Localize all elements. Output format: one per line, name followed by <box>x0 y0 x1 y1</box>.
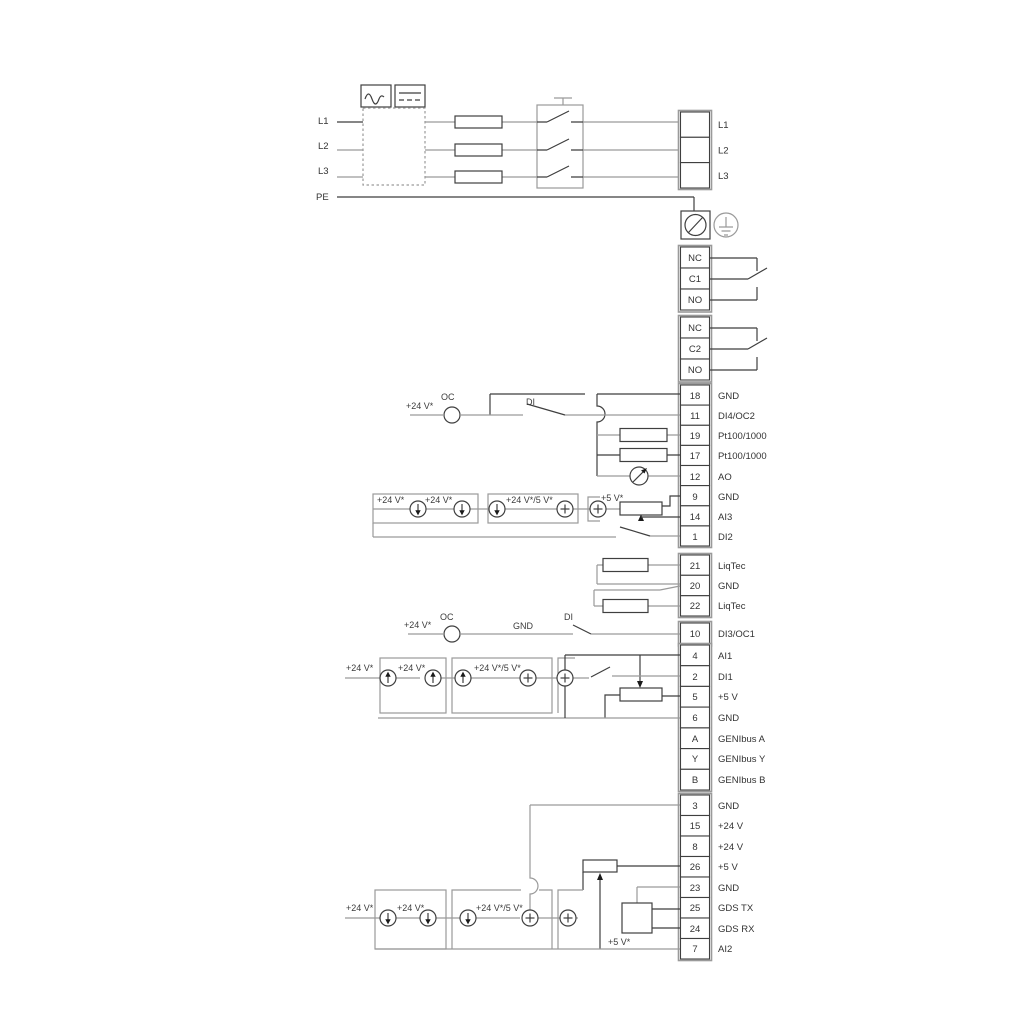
di3-gnd-label: GND <box>513 621 534 631</box>
relay1-no-label: NO <box>688 295 702 306</box>
current-source-icon <box>455 670 471 686</box>
liqtec-sensor-icon-1 <box>603 559 648 572</box>
terminal-22-num: 22 <box>690 601 701 612</box>
ai2-wiper-arrowhead <box>597 873 603 880</box>
ai1-pot-to-gnd <box>605 695 620 718</box>
terminal-26-label: +5 V <box>718 862 738 873</box>
relay1-nc-label: NC <box>688 253 702 264</box>
terminal-14-num: 14 <box>690 512 701 523</box>
liqtec-section: 21 20 22 LiqTec GND LiqTec <box>594 554 746 618</box>
terminal-l1-label: L1 <box>718 120 729 131</box>
terminal-12-label: AO <box>718 472 732 483</box>
terminal-15-num: 15 <box>690 821 701 832</box>
di3-oc-label: OC <box>440 612 454 622</box>
terminal-4-num: 4 <box>692 651 697 662</box>
gds-module-icon <box>622 903 652 933</box>
ai3-v24-label-a: +24 V* <box>377 495 405 505</box>
mains-l1-label: L1 <box>318 116 329 127</box>
terminal-Y-label: GENIbus Y <box>718 754 766 765</box>
ai3-v24-5v-label: +24 V*/5 V* <box>506 495 553 505</box>
wire-pe <box>337 197 694 211</box>
di4-oc-icon <box>444 407 460 423</box>
terminal-7-num: 7 <box>692 944 697 955</box>
current-source-icon <box>489 501 505 517</box>
di4-box <box>490 394 585 415</box>
relay2-contact-icon <box>710 328 767 370</box>
terminal-6-num: 6 <box>692 713 697 724</box>
ai1-v24-label-b: +24 V* <box>398 663 426 673</box>
terminal-8-label: +24 V <box>718 842 744 853</box>
terminal-21-num: 21 <box>690 561 701 572</box>
terminal-B-label: GENIbus B <box>718 775 766 786</box>
gds-wires <box>652 909 680 928</box>
pt100-resistor-icon-1 <box>620 429 667 442</box>
voltage-source-icon <box>557 501 573 517</box>
terminal-2-num: 2 <box>692 672 697 683</box>
contactor-pole-1 <box>537 111 583 122</box>
ai2-potentiometer-icon <box>583 860 617 872</box>
fuse-l2-icon <box>455 144 502 156</box>
terminal-10-label: DI3/OC1 <box>718 629 755 640</box>
ai2-5v-label: +5 V* <box>608 937 631 947</box>
di4-oc-label: OC <box>441 392 455 402</box>
terminal-20-num: 20 <box>690 581 701 592</box>
ai3-v24-label-b: +24 V* <box>425 495 453 505</box>
terminal-25-num: 25 <box>690 903 701 914</box>
current-source-icon <box>454 501 470 517</box>
ai3-pot-to-gnd <box>662 496 680 506</box>
current-source-icon <box>460 910 476 926</box>
relay1-c1-label: C1 <box>689 274 701 285</box>
terminal-14-label: AI3 <box>718 512 732 523</box>
terminal-A-label: GENIbus A <box>718 734 766 745</box>
terminal-9-label: GND <box>718 492 739 503</box>
terminal-4-label: AI1 <box>718 651 732 662</box>
terminal-l3-label: L3 <box>718 171 729 182</box>
terminal-9-num: 9 <box>692 492 697 503</box>
io-block-1-section: 18 11 19 17 12 9 14 1 GND DI4/OC2 Pt100/… <box>373 384 767 548</box>
relay-2-section: NC C2 NO <box>679 316 768 383</box>
dc-symbol-box <box>395 85 425 107</box>
terminal-l2-label: L2 <box>718 146 729 157</box>
terminal-10-num: 10 <box>690 629 701 640</box>
mains-l2-label: L2 <box>318 141 329 152</box>
fuse-l1-icon <box>455 116 502 128</box>
relay2-no-label: NO <box>688 365 702 376</box>
voltage-source-icon <box>522 910 538 926</box>
current-source-icon <box>410 501 426 517</box>
contactor-box-icon <box>537 105 583 188</box>
current-source-icon <box>380 910 396 926</box>
terminal-23-label: GND <box>718 883 739 894</box>
voltage-source-icon <box>520 670 536 686</box>
wire-gnd23 <box>637 887 680 903</box>
terminal-24-label: GDS RX <box>718 924 755 935</box>
terminal-21-label: LiqTec <box>718 561 746 572</box>
mains-pe-label: PE <box>316 192 329 203</box>
ai2-v24-5v-label: +24 V*/5 V* <box>476 903 523 913</box>
current-source-icon <box>425 670 441 686</box>
terminal-17-num: 17 <box>690 451 701 462</box>
contactor-pole-3 <box>537 166 583 177</box>
terminal-11-label: DI4/OC2 <box>718 411 755 422</box>
mains-l3-label: L3 <box>318 166 329 177</box>
terminal-2-label: DI1 <box>718 672 733 683</box>
terminal-6-label: GND <box>718 713 739 724</box>
gnd3-riser <box>530 805 538 910</box>
terminal-Y-num: Y <box>692 754 699 765</box>
di1-switch-icon <box>591 667 610 677</box>
ai2-v24-label-a: +24 V* <box>346 903 374 913</box>
relay2-c2-label: C2 <box>689 344 701 355</box>
voltage-source-icon <box>590 501 606 517</box>
terminal-l1 <box>681 112 710 137</box>
voltage-source-icon <box>560 910 576 926</box>
terminal-18-num: 18 <box>690 391 701 402</box>
ai1-v24-5v-label: +24 V*/5 V* <box>474 663 521 673</box>
di3-oc-icon <box>444 626 460 642</box>
terminal-5-label: +5 V <box>718 692 738 703</box>
ai1-v24-label-a: +24 V* <box>346 663 374 673</box>
terminal-25-label: GDS TX <box>718 903 754 914</box>
terminal-3-label: GND <box>718 801 739 812</box>
wiring-diagram-page: L1 L2 L3 PE L1 L2 L3 <box>0 0 1024 1024</box>
terminal-23-num: 23 <box>690 883 701 894</box>
terminal-19-label: Pt100/1000 <box>718 431 767 442</box>
wiring-diagram: L1 L2 L3 PE L1 L2 L3 <box>0 0 1024 1024</box>
terminal-22-label: LiqTec <box>718 601 746 612</box>
relay-1-section: NC C1 NO <box>679 246 768 313</box>
terminal-18-label: GND <box>718 391 739 402</box>
ai1-wiper-arrowhead <box>637 681 643 688</box>
relay2-nc-label: NC <box>688 323 702 334</box>
terminal-19-num: 19 <box>690 431 701 442</box>
filter-box-icon <box>363 108 425 185</box>
di3-v24-label: +24 V* <box>404 620 432 630</box>
io-block-2-section: 4 2 5 6 A Y B AI1 DI1 +5 V GND GENIbus A… <box>345 644 766 792</box>
di4-v24-label: +24 V* <box>406 401 434 411</box>
terminal-5-num: 5 <box>692 692 697 703</box>
terminal-7-label: AI2 <box>718 944 732 955</box>
terminal-20-label: GND <box>718 581 739 592</box>
terminal-24-num: 24 <box>690 924 701 935</box>
current-source-icon <box>380 670 396 686</box>
ai2-v24-label-b: +24 V* <box>397 903 425 913</box>
mains-input-section: L1 L2 L3 PE L1 L2 L3 <box>316 85 738 239</box>
voltage-source-icon <box>557 670 573 686</box>
earth-glyph <box>719 217 733 235</box>
wires-to-terminals <box>583 122 680 177</box>
terminal-A-num: A <box>692 734 699 745</box>
contactor-pole-2 <box>537 139 583 150</box>
terminal-l2 <box>681 137 710 162</box>
di3-switch-icon <box>573 625 591 634</box>
terminal-17-label: Pt100/1000 <box>718 451 767 462</box>
terminal-11-num: 11 <box>690 411 700 422</box>
liqtec-sensor-icon-2 <box>603 600 648 613</box>
di2-switch-icon <box>620 527 650 536</box>
di2-wire <box>373 523 680 537</box>
ai3-potentiometer-icon <box>620 502 662 515</box>
fuse-l3-icon <box>455 171 502 183</box>
contactor-actuator <box>554 98 572 105</box>
io-block-3-section: 3 15 8 26 23 25 24 7 GND +24 V +24 V +5 … <box>345 794 755 961</box>
di3-di-label: DI <box>564 612 573 622</box>
relay1-contact-icon <box>710 258 767 300</box>
ai1-potentiometer-icon <box>620 688 662 701</box>
pt100-resistor-icon-2 <box>620 449 667 462</box>
terminal-l3 <box>681 163 710 188</box>
terminal-8-num: 8 <box>692 842 697 853</box>
di4-switch-icon <box>527 404 565 415</box>
terminal-1-label: DI2 <box>718 532 733 543</box>
terminal-15-label: +24 V <box>718 821 744 832</box>
terminal-3-num: 3 <box>692 801 697 812</box>
terminal-1-num: 1 <box>692 532 697 543</box>
terminal-26-num: 26 <box>690 862 701 873</box>
terminal-B-num: B <box>692 775 698 786</box>
terminal-12-num: 12 <box>690 472 701 483</box>
